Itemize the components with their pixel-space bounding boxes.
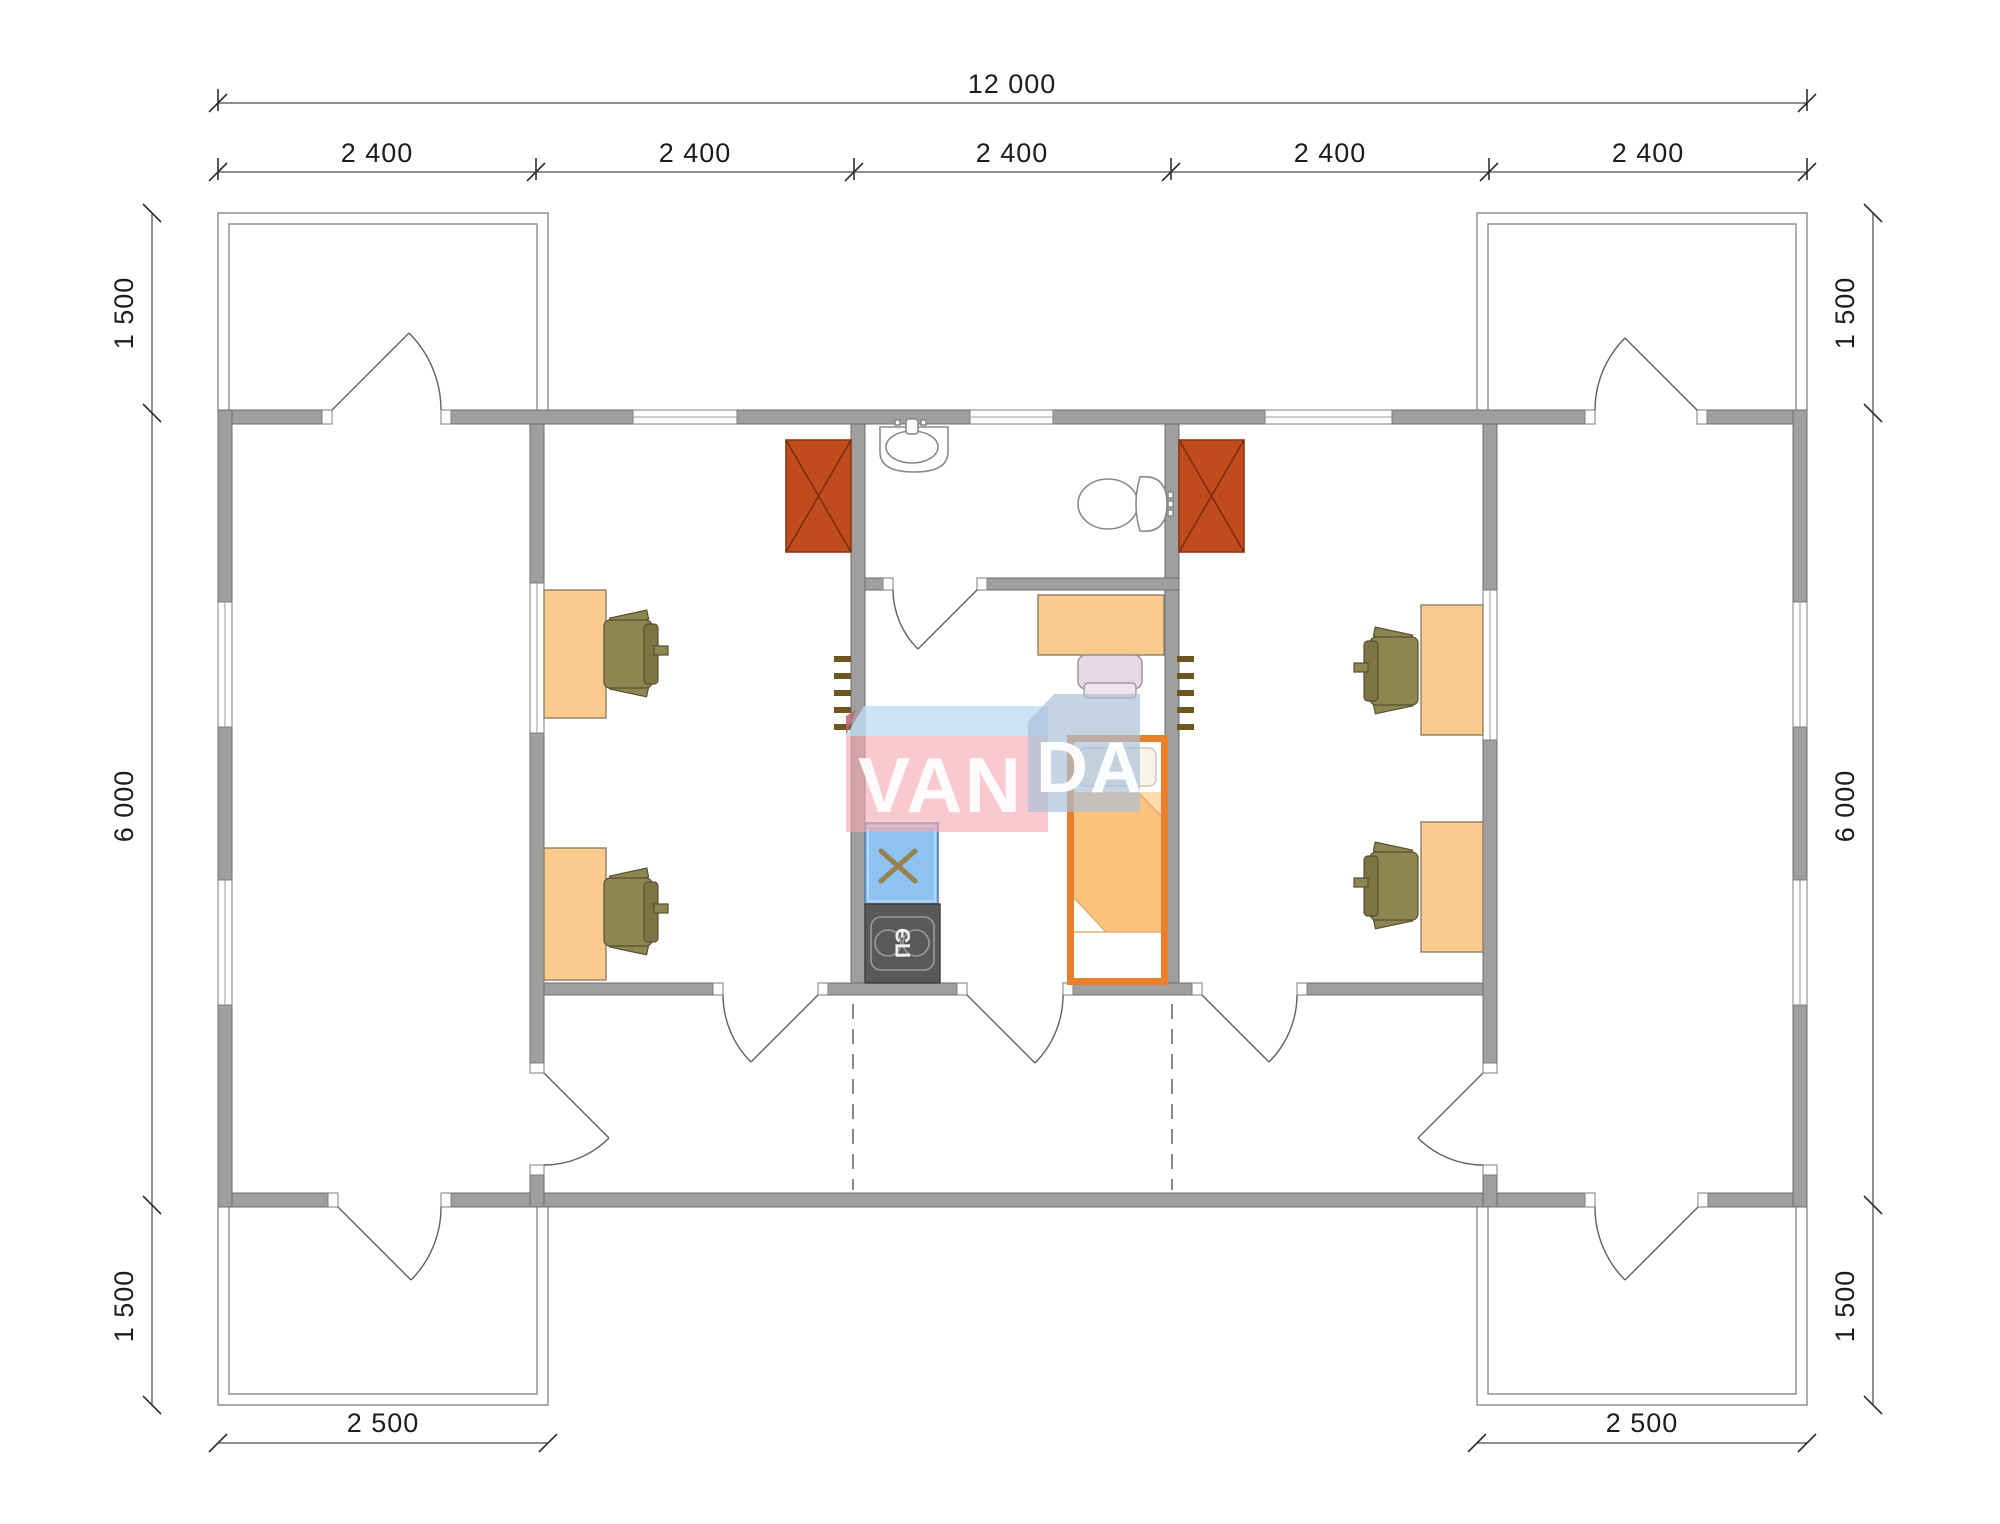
stove-label: ПЭ (892, 928, 915, 958)
desk-room4-upper (1421, 605, 1483, 735)
porch-bottom-left (218, 1207, 548, 1405)
door-porch-bottom-left (338, 1207, 441, 1280)
floor-plan-drawing: 12 000 2 400 2 400 2 400 2 400 2 400 1 5… (0, 0, 2000, 1524)
porch-top-right (1477, 213, 1807, 410)
wardrobe-left (786, 440, 851, 552)
wardrobe-right (1179, 440, 1244, 552)
door-porch-bottom-right (1595, 1207, 1698, 1280)
door-kitchen-corridor (967, 995, 1063, 1063)
dim-left-bottom: 1 500 (109, 1270, 139, 1343)
chair-room4-upper (1354, 627, 1418, 714)
corridor-module-lines (853, 1004, 1172, 1190)
door-porch-top-left (332, 333, 441, 410)
dim-left-top: 1 500 (109, 277, 139, 350)
wall-south (218, 1193, 1807, 1207)
sink (880, 419, 948, 472)
chair-room2-lower (604, 868, 668, 955)
dim-left-middle: 6 000 (109, 770, 139, 843)
vanda-watermark: VAN DA (846, 694, 1144, 832)
floor-plan-canvas: 12 000 2 400 2 400 2 400 2 400 2 400 1 5… (0, 0, 2000, 1524)
dim-right-middle: 6 000 (1830, 770, 1860, 843)
bathroom (880, 419, 1173, 531)
dim-total-width: 12 000 (968, 69, 1057, 99)
dim-porch-left: 2 500 (347, 1408, 420, 1438)
door-room5-corridor (1418, 1073, 1483, 1165)
dim-module-4: 2 400 (1294, 138, 1367, 168)
door-room4-corridor (1202, 995, 1297, 1062)
chair-room2-upper (604, 610, 668, 697)
dim-module-3: 2 400 (976, 138, 1049, 168)
watermark-text-van: VAN (858, 741, 1023, 829)
dim-right-top: 1 500 (1830, 277, 1860, 350)
porch-top-left (218, 213, 548, 410)
electric-stove: ПЭ (865, 904, 940, 983)
dim-right-bottom: 1 500 (1830, 1270, 1860, 1343)
door-bathroom (893, 590, 977, 649)
dim-porch-right: 2 500 (1606, 1408, 1679, 1438)
dim-module-1: 2 400 (341, 138, 414, 168)
desk-room2-upper (544, 590, 606, 718)
desk-room4-lower (1421, 822, 1483, 952)
watermark-text-da: DA (1036, 728, 1144, 808)
wall-east (1793, 410, 1807, 1207)
desk-room2-lower (544, 848, 606, 980)
kitchen-counter (865, 823, 938, 904)
toilet (1078, 477, 1173, 532)
dim-module-2: 2 400 (659, 138, 732, 168)
chair-room4-lower (1354, 842, 1418, 929)
porch-bottom-right (1477, 1207, 1807, 1405)
door-room2-corridor (723, 995, 818, 1062)
dim-module-5: 2 400 (1612, 138, 1685, 168)
door-room1-corridor (544, 1073, 609, 1165)
wall-west (218, 410, 232, 1207)
desk-kitchen (1038, 595, 1164, 655)
chair-kitchen (1078, 655, 1142, 698)
heater-right (1177, 656, 1194, 730)
door-porch-top-right (1595, 338, 1697, 410)
